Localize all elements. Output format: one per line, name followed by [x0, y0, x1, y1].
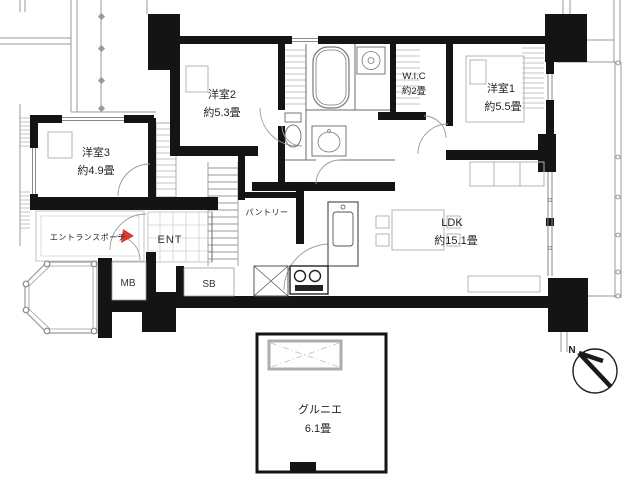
room-yoshitsu3-size: 約4.9畳	[77, 163, 114, 177]
tv-board	[468, 276, 540, 292]
label-entrance-porch: エントランスポーチ	[50, 233, 126, 242]
label-mb: MB	[121, 278, 136, 289]
label-sb: SB	[202, 279, 216, 290]
room-wic-name: W.I.C	[402, 71, 425, 82]
desk	[186, 66, 208, 92]
dresser	[48, 132, 72, 158]
room-ldk: LDK 約15.1畳	[434, 217, 477, 247]
room-wic-size: 約2畳	[402, 85, 427, 97]
washing-machine-pan	[357, 47, 385, 74]
toilet	[285, 113, 301, 147]
north-compass: N	[568, 345, 617, 393]
balcony	[556, 61, 621, 298]
grenier-hatch	[290, 462, 316, 472]
bathtub	[313, 47, 349, 108]
room-yoshitsu2-name: 洋室2	[208, 87, 236, 101]
label-pantry: パントリー	[246, 208, 289, 217]
room-yoshitsu1-name: 洋室1	[487, 81, 515, 95]
room-wic: W.I.C 約2畳	[402, 71, 427, 97]
label-ent: ENT	[158, 234, 183, 246]
room-yoshitsu3-name: 洋室3	[82, 145, 110, 159]
room-yoshitsu2-size: 約5.3畳	[203, 105, 240, 119]
vanity-sink	[312, 126, 346, 156]
room-grenier-size: 6.1畳	[305, 422, 331, 435]
north-label: N	[568, 345, 575, 356]
room-yoshitsu3: 洋室3 約4.9畳	[77, 145, 114, 177]
sofa	[470, 162, 544, 186]
floorplan-canvas: N 洋室2 約5.3畳 洋室1 約5.5畳 洋室3 約4.9畳 W.I.C 約2…	[0, 0, 628, 480]
room-ldk-name: LDK	[441, 217, 463, 229]
room-yoshitsu1-size: 約5.5畳	[484, 99, 521, 113]
octagon-bay	[23, 261, 97, 334]
refrigerator-space	[254, 266, 288, 296]
grenier-skylight	[269, 341, 341, 369]
stove	[290, 266, 328, 294]
grenier-box	[257, 334, 386, 472]
north-arrow-icon	[579, 353, 611, 387]
room-yoshitsu2: 洋室2 約5.3畳	[203, 87, 240, 119]
floorplan-svg: N 洋室2 約5.3畳 洋室1 約5.5畳 洋室3 約4.9畳 W.I.C 約2…	[0, 0, 628, 480]
kitchen-counter	[328, 202, 358, 266]
room-grenier-name: グルニエ	[298, 402, 342, 416]
furniture	[48, 56, 544, 292]
room-ldk-size: 約15.1畳	[434, 233, 477, 247]
room-yoshitsu1: 洋室1 約5.5畳	[484, 81, 521, 113]
